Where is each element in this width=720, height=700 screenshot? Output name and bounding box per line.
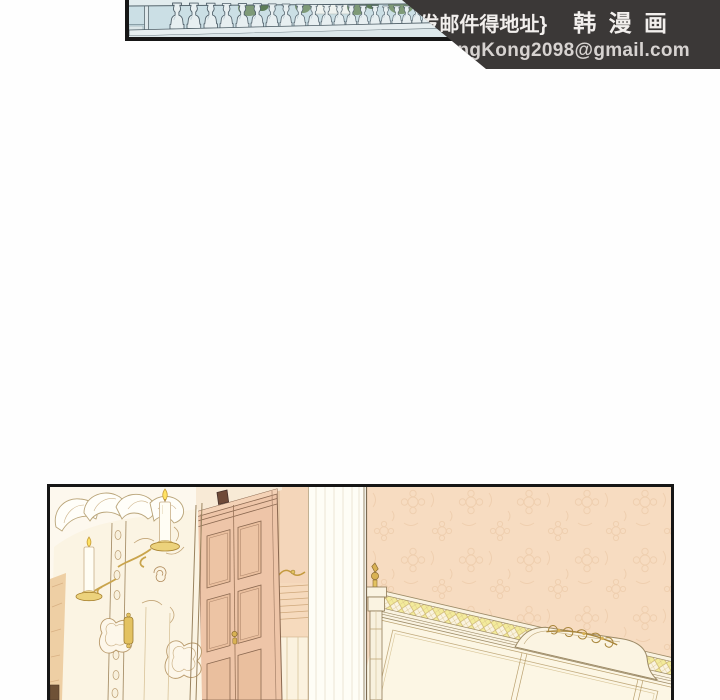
comic-page: {发邮件得地址}韩 漫 画 HongKong2098@gmail.com: [0, 0, 720, 700]
email-text: HongKong2098@gmail.com: [432, 40, 690, 61]
brand-text: 韩 漫 画: [573, 10, 670, 36]
bedroom-artwork: [50, 487, 671, 700]
banner-email-line: HongKong2098@gmail.com: [0, 40, 720, 62]
bottom-comic-panel: [47, 484, 674, 700]
